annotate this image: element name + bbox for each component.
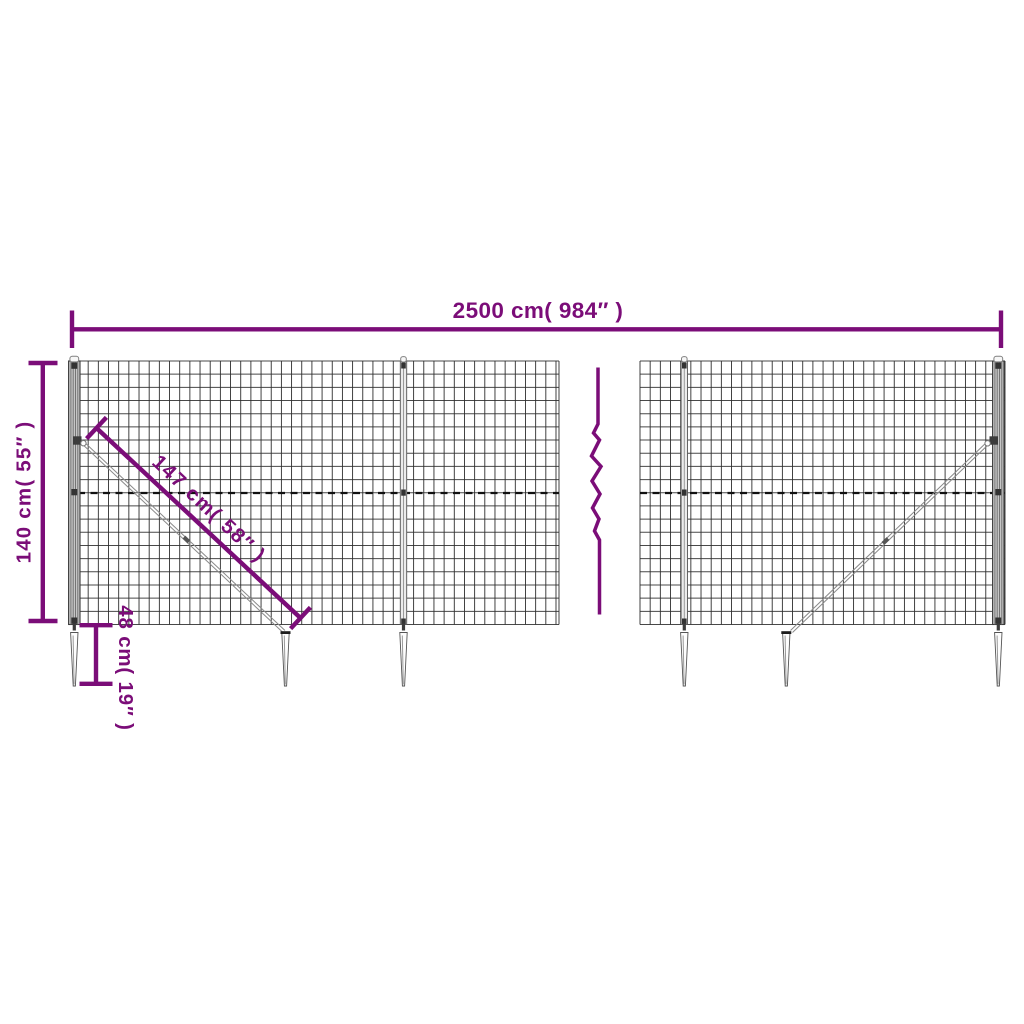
svg-text:48 cm( 19″ ): 48 cm( 19″ ) <box>114 605 137 730</box>
svg-text:140 cm( 55″ ): 140 cm( 55″ ) <box>13 421 36 564</box>
svg-text:2500 cm( 984″ ): 2500 cm( 984″ ) <box>453 298 624 323</box>
